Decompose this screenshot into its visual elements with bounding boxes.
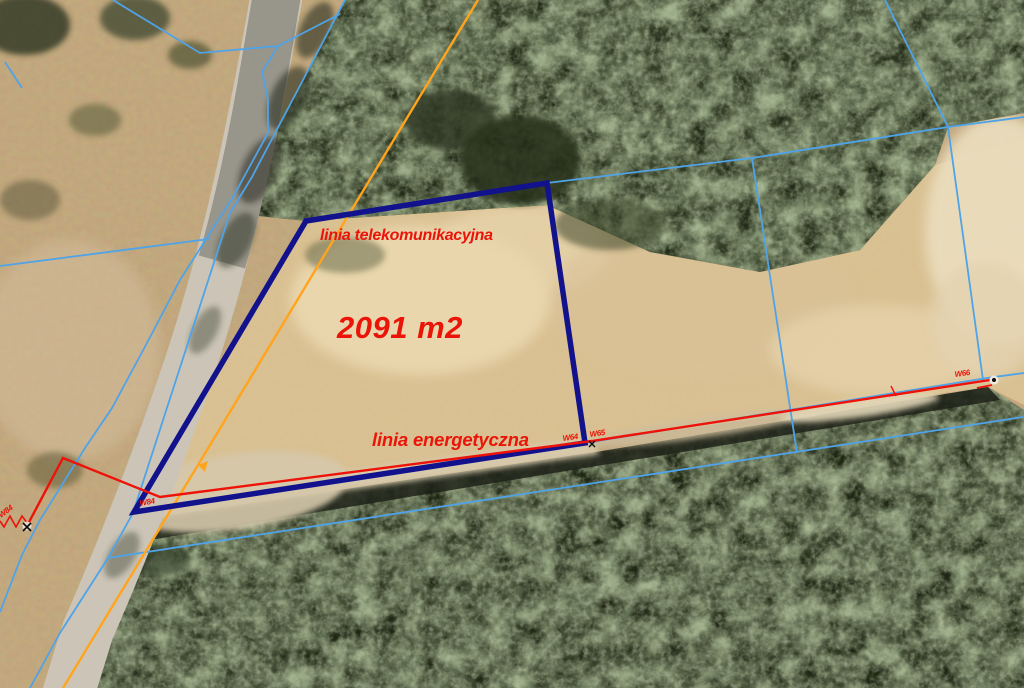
terrain <box>0 0 1024 688</box>
pole-marker <box>992 378 996 382</box>
aerial-map: linia telekomunikacyjna 2091 m2 linia en… <box>0 0 1024 688</box>
telecom-label: linia telekomunikacyjna <box>320 227 493 244</box>
power-label: linia energetyczna <box>372 429 529 450</box>
aerial-map-canvas: linia telekomunikacyjna 2091 m2 linia en… <box>0 0 1024 688</box>
area-label: 2091 m2 <box>336 310 463 345</box>
